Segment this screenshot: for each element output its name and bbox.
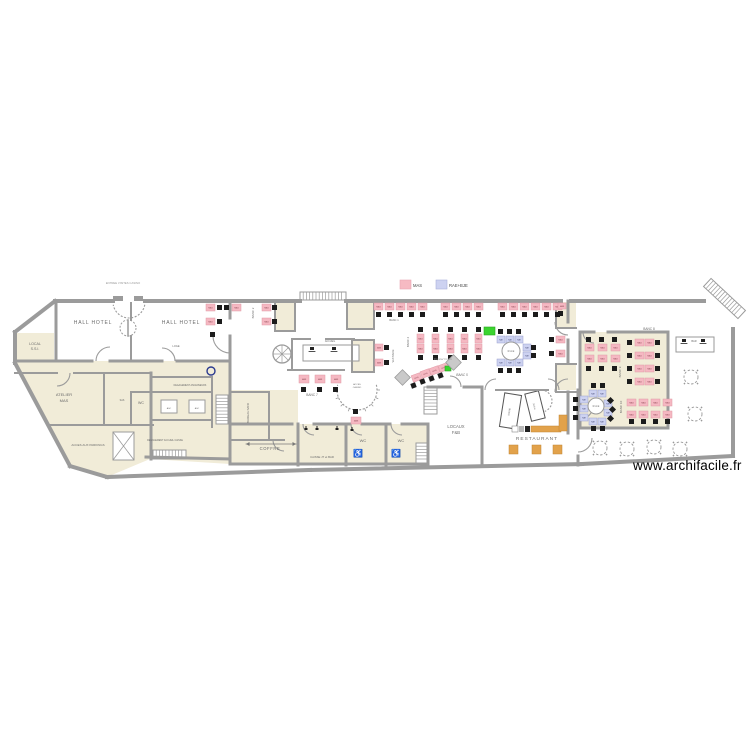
chair	[217, 305, 222, 310]
tap-icon	[352, 427, 353, 429]
slot-machine-label: MAS	[637, 354, 642, 357]
room-label: R.A.E	[593, 404, 600, 408]
buffet-element	[525, 426, 530, 432]
chair	[655, 379, 660, 384]
slot-machine: MAS	[417, 334, 424, 343]
slot-machine-label: MAS	[637, 380, 642, 383]
slot-machine: MAS	[663, 399, 672, 406]
slot-machine: MAS	[452, 303, 461, 310]
chair	[511, 312, 516, 317]
slot-machine-label: MAS	[647, 341, 652, 344]
legend-swatch-rae+bje	[436, 280, 447, 289]
room-label: R.A.E	[508, 349, 515, 353]
wheelchair-icon: ♿	[391, 448, 401, 458]
room-label: CAISSE JT et BAR	[310, 455, 334, 459]
wall	[15, 301, 55, 332]
slot-machine: MAS	[418, 303, 427, 310]
lounge-chair	[606, 440, 608, 442]
chair	[549, 351, 554, 356]
room-area	[17, 333, 54, 372]
slot-machine: MAS	[598, 344, 607, 351]
slot-machine-label: MAS	[600, 357, 605, 360]
chair	[591, 383, 596, 388]
room-label: S.S.I.	[31, 347, 40, 351]
slot-machine: MAS	[635, 352, 644, 359]
chair	[533, 312, 538, 317]
chair	[522, 312, 527, 317]
fan-tick	[336, 398, 339, 399]
lounge-chair	[701, 406, 703, 408]
slot-machine: MAS	[556, 336, 565, 343]
box-body	[189, 400, 205, 413]
slot-machine-label: MAS	[476, 305, 481, 308]
slot-machine: MAS	[375, 359, 383, 366]
chair	[398, 312, 403, 317]
slot-machine-label: MAS	[558, 338, 563, 341]
slot-machine: MAS	[417, 344, 424, 353]
room-label: COFFRE	[260, 446, 281, 451]
slot-machine-label: MAS	[398, 305, 403, 308]
lounge-chair	[683, 383, 685, 385]
chair	[549, 337, 554, 342]
chair	[573, 415, 578, 420]
restaurant-table	[509, 445, 518, 454]
room-label: BUREAU MCD	[246, 402, 250, 423]
chair	[462, 355, 467, 360]
slot-machine-label: MAS	[511, 305, 516, 308]
slot-machine: MAS	[663, 411, 672, 418]
chair	[384, 360, 389, 365]
staircase	[300, 292, 346, 300]
tap-icon	[305, 428, 308, 430]
chair	[586, 366, 591, 371]
floor-plan: MASMASMASMASMASMASMASMASMASMASMASMASMASM…	[0, 0, 750, 750]
lounge-chair	[619, 455, 621, 457]
chair	[410, 382, 416, 388]
slot-machine-label: MAS	[454, 305, 459, 308]
slot-machine: MAS	[639, 411, 648, 418]
slot-machine-label: MAS	[448, 337, 453, 340]
chair	[433, 327, 438, 332]
room-label: ACCES	[353, 383, 361, 386]
legend-label: RAE+BJE	[449, 283, 468, 288]
slot-machine: MAS	[585, 355, 594, 362]
staircase	[704, 278, 746, 318]
chair	[531, 353, 536, 358]
room-label: ATELIER	[56, 392, 72, 397]
slot-machine-label: MAS	[465, 305, 470, 308]
desk-icon	[310, 347, 314, 350]
lounge-chair	[646, 453, 648, 455]
slot-machine: MAS	[585, 344, 594, 351]
chair	[600, 383, 605, 388]
slot-machine-label: MAS	[208, 320, 213, 323]
slot-machine-label: MAS	[600, 346, 605, 349]
slot-machine: MAS	[611, 344, 620, 351]
wall	[146, 457, 230, 459]
chair	[558, 311, 563, 316]
slot-machine: MAS	[315, 375, 325, 383]
slot-machine: MAS	[556, 350, 565, 357]
chair	[507, 329, 512, 334]
slot-machine-label: MAS	[629, 401, 634, 404]
fan-tick	[375, 398, 378, 399]
restaurant-table	[531, 426, 561, 432]
chair	[599, 337, 604, 342]
room-label: SAS	[120, 399, 125, 402]
lounge-chair	[672, 455, 674, 457]
chair	[655, 366, 660, 371]
tap-icon	[336, 428, 339, 430]
chair	[353, 409, 358, 414]
fan-tick	[341, 404, 343, 406]
box-body	[161, 400, 177, 413]
slot-machine: MAS	[447, 344, 454, 353]
slot-machine-label: MAS	[665, 401, 670, 404]
slot-machine-label: MAS	[641, 401, 646, 404]
room-label: ACCUEIL	[325, 340, 336, 343]
slot-machine-label: MAS	[234, 306, 239, 309]
slot-machine: MAS	[374, 303, 383, 310]
wheelchair-icon: ♿	[353, 448, 363, 458]
chair	[476, 355, 481, 360]
slot-machine-label: MAS	[476, 337, 481, 340]
slot-machine-label: MAS	[587, 357, 592, 360]
slot-machine: MAS	[461, 344, 468, 353]
slot-machine-label: MAS	[613, 346, 618, 349]
slot-machine-label: MAS	[476, 347, 481, 350]
chair	[516, 329, 521, 334]
chair	[655, 353, 660, 358]
chair	[586, 337, 591, 342]
slot-machine: MAS	[351, 417, 361, 424]
slot-machine-label: MAS	[647, 354, 652, 357]
slot-machine-label: MAS	[318, 378, 323, 381]
chair	[418, 355, 423, 360]
slot-machine-label: MAS	[647, 367, 652, 370]
slot-machine-label: MAS	[637, 367, 642, 370]
chair	[653, 419, 658, 424]
room-label: BAR	[691, 339, 696, 343]
slot-machine: MAS	[651, 411, 660, 418]
slot-machine-label: MAS	[665, 413, 670, 416]
lounge-chair	[606, 454, 608, 456]
fan-tick	[348, 408, 349, 411]
chair	[437, 372, 443, 378]
slot-machine-label: MAS	[629, 413, 634, 416]
slot-machine: MAS	[531, 303, 540, 310]
slot-machine: MAS	[598, 355, 607, 362]
slot-machine-label: MAS	[544, 305, 549, 308]
chair	[217, 319, 222, 324]
lounge-chair	[683, 369, 685, 371]
fan-tick	[371, 404, 373, 406]
slot-machine: MAS	[432, 334, 439, 343]
tap-icon	[306, 426, 307, 428]
slot-machine: MAS	[385, 303, 394, 310]
slot-machine-label: MAS	[653, 401, 658, 404]
desk-icon	[701, 339, 705, 342]
room-label: ASC	[167, 407, 172, 410]
chair	[428, 375, 434, 381]
slot-machine: MAS	[635, 365, 644, 372]
tap-icon	[316, 428, 319, 430]
room-label: CASINO	[353, 386, 362, 389]
slot-machine-label: MAS	[264, 320, 269, 323]
slot-machine-label: MAS	[448, 347, 453, 350]
lounge-chair	[697, 369, 699, 371]
slot-machine-label: MAS	[443, 305, 448, 308]
door-arc	[545, 391, 552, 412]
slot-machine: MAS	[651, 399, 660, 406]
slot-machine-label: MAS	[637, 341, 642, 344]
room-label: VESTIAIRE	[392, 349, 395, 362]
room-label: BANC 1	[389, 318, 399, 322]
chair	[573, 406, 578, 411]
chair	[612, 366, 617, 371]
chair	[418, 327, 423, 332]
slot-machine-label: MAS	[500, 305, 505, 308]
chair	[224, 305, 229, 310]
tap-icon	[337, 426, 338, 428]
box	[161, 400, 177, 413]
slot-machine: MAS	[299, 375, 309, 383]
room-label: ENTREE VISITES CASINO	[106, 281, 141, 285]
slot-machine: MAS	[206, 304, 215, 311]
slot-machine: MAS	[558, 303, 566, 309]
slot-machine-label: MAS	[409, 305, 414, 308]
room-label: RESTAURANT	[516, 436, 558, 442]
slot-machine-label: MAS	[420, 305, 425, 308]
chair	[498, 329, 503, 334]
slot-machine: MAS	[542, 303, 551, 310]
chair	[599, 366, 604, 371]
tap-icon	[317, 426, 318, 428]
slot-machine-label: MAS	[264, 306, 269, 309]
desk-icon	[332, 347, 336, 350]
slot-machine: MAS	[475, 334, 482, 343]
chair	[516, 368, 521, 373]
desk-icon	[682, 339, 686, 342]
slot-machine: MAS	[498, 303, 507, 310]
slot-machine-label: MAS	[560, 305, 565, 308]
slot-machine: MAS	[645, 352, 654, 359]
slot-machine-label: MAS	[462, 337, 467, 340]
chair	[454, 312, 459, 317]
box	[113, 432, 134, 460]
slot-machine-label: MAS	[613, 357, 618, 360]
room-label: BANC 8	[643, 327, 655, 331]
chair	[665, 419, 670, 424]
slot-machine: MAS	[262, 318, 271, 325]
restaurant-table	[532, 445, 541, 454]
room-label: HALL HOTEL	[74, 320, 112, 326]
slot-machine: MAS	[639, 399, 648, 406]
lounge-table	[673, 442, 687, 456]
stair-body	[424, 387, 437, 414]
slot-machine-label: MAS	[418, 347, 423, 350]
chair	[627, 353, 632, 358]
slot-machine-label: MAS	[641, 413, 646, 416]
slot-machine-label: MAS	[376, 305, 381, 308]
chair	[612, 337, 617, 342]
chair	[500, 312, 505, 317]
room-label: LOCAUX	[447, 424, 464, 429]
room-label: MAS	[60, 398, 69, 403]
slot-machine-label: MAS	[418, 337, 423, 340]
slot-machine-label: MAS	[522, 305, 527, 308]
room-label: ASC	[195, 407, 200, 410]
slot-machine: MAS	[520, 303, 529, 310]
buffet-element	[519, 426, 524, 432]
chair	[531, 345, 536, 350]
slot-machine-label: MAS	[462, 347, 467, 350]
slot-machine-label: MAS	[302, 378, 307, 381]
room-label: BANC 10	[619, 400, 623, 413]
room-label: Crystal Curve	[434, 357, 453, 361]
room-label: LOGE	[172, 344, 179, 348]
slot-machine-label: MAS	[587, 346, 592, 349]
slot-machine: MAS	[645, 378, 654, 385]
buffet-element	[512, 426, 518, 432]
slot-machine-label: MAS	[533, 305, 538, 308]
legend-swatch-mas	[400, 280, 411, 289]
slot-machine: MAS	[635, 378, 644, 385]
chair	[627, 366, 632, 371]
slot-machine-label: MAS	[433, 337, 438, 340]
lounge-chair	[697, 383, 699, 385]
lounge-chair	[592, 440, 594, 442]
chair	[591, 426, 596, 431]
slot-machine: MAS	[262, 304, 271, 311]
slot-machine: MAS	[407, 303, 416, 310]
slot-machine-label: MAS	[433, 347, 438, 350]
lounge-chair	[686, 441, 688, 443]
box	[134, 296, 143, 301]
room-label: WC	[138, 401, 144, 405]
tap-icon	[351, 429, 354, 431]
room-label: DEGAGEMENT ASCENSEURS	[174, 384, 207, 387]
slot-machine: MAS	[635, 339, 644, 346]
stair-body	[300, 292, 346, 300]
chair	[641, 419, 646, 424]
slot-machine: MAS	[611, 355, 620, 362]
chair	[629, 419, 634, 424]
room-label: WC	[398, 438, 405, 443]
slot-machine: MAS	[509, 303, 518, 310]
lounge-chair	[646, 439, 648, 441]
lounge-table	[593, 441, 607, 455]
lounge-chair	[660, 439, 662, 441]
room-area	[556, 364, 576, 390]
room-label: LOCAL	[29, 342, 41, 346]
stair-body	[216, 395, 228, 424]
slot-machine: MAS	[645, 365, 654, 372]
room-label: BANC 5	[456, 373, 468, 377]
chair	[384, 345, 389, 350]
chair	[333, 387, 338, 392]
chair	[462, 327, 467, 332]
slot-machine-label: MAS	[354, 419, 359, 422]
slot-machine-label: MAS	[558, 352, 563, 355]
slot-machine: MAS	[447, 334, 454, 343]
lounge-table	[647, 440, 661, 454]
room-label: ACCES AUX PARKINGS	[71, 443, 104, 447]
watermark: www.archifacile.fr	[633, 458, 742, 473]
chair	[443, 312, 448, 317]
chair	[376, 312, 381, 317]
lounge-table	[684, 370, 698, 384]
restaurant-table	[553, 445, 562, 454]
chair	[409, 312, 414, 317]
room-label: DEGAGEMENT ACCUEIL CAISSE	[147, 439, 183, 442]
room-label: HALL HOTEL	[162, 320, 200, 326]
door-arc	[450, 376, 461, 387]
chair	[210, 332, 215, 337]
box-body	[134, 296, 143, 301]
room-label: BANC 9	[618, 366, 622, 377]
staircase	[216, 395, 228, 424]
room-label: WC	[360, 438, 367, 443]
chair	[476, 312, 481, 317]
lounge-chair	[672, 441, 674, 443]
slot-machine: MAS	[396, 303, 405, 310]
crystal-curve-end	[395, 370, 411, 386]
chair	[272, 319, 277, 324]
door-arc	[485, 379, 496, 390]
wall	[107, 470, 310, 477]
slot-machine: MAS	[375, 344, 383, 351]
chair	[476, 327, 481, 332]
slot-machine-label: MAS	[653, 413, 658, 416]
lounge-chair	[687, 420, 689, 422]
slot-machine-label: MAS	[334, 378, 339, 381]
legend-label: MAS	[413, 283, 422, 288]
room-area	[275, 301, 296, 332]
lounge-chair	[592, 454, 594, 456]
chair	[573, 397, 578, 402]
chair	[465, 312, 470, 317]
room-label: F&B	[452, 430, 460, 435]
slot-machine: MAS	[441, 303, 450, 310]
chair	[544, 312, 549, 317]
lounge-table	[620, 442, 634, 456]
slot-machine: MAS	[475, 344, 482, 353]
chair	[420, 312, 425, 317]
lounge-chair	[633, 455, 635, 457]
room-label: BANC 7	[306, 393, 318, 397]
chair	[600, 426, 605, 431]
slot-machine: MAS	[627, 411, 636, 418]
chair	[507, 368, 512, 373]
lounge-chair	[660, 453, 662, 455]
chair	[498, 368, 503, 373]
room-label: BANC 4	[406, 337, 410, 348]
restaurant-table	[559, 415, 567, 431]
chair	[301, 387, 306, 392]
slot-machine-label: MAS	[377, 346, 382, 349]
highlighted-machine	[484, 327, 495, 335]
slot-machine-label: MAS	[647, 380, 652, 383]
door-arc	[578, 438, 592, 452]
slot-machine: MAS	[331, 375, 341, 383]
box	[189, 400, 205, 413]
slot-machine-label: MAS	[377, 361, 382, 364]
lounge-chair	[701, 420, 703, 422]
slot-machine: MAS	[627, 399, 636, 406]
lounge-table	[688, 407, 702, 421]
fan-tick	[365, 408, 366, 411]
